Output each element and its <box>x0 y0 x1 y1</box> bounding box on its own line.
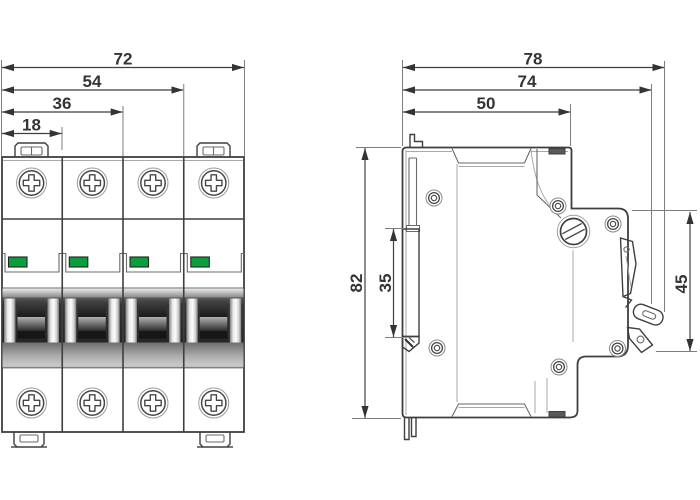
lock-tab-lower <box>628 328 653 353</box>
status-indicator-green <box>69 257 88 267</box>
front-view <box>2 143 244 447</box>
dim-label-45: 45 <box>672 275 691 294</box>
technical-drawing-page: 72 54 36 18 <box>0 0 700 500</box>
side-body-outline <box>403 148 629 418</box>
toggle-partition <box>169 299 181 343</box>
toggle-partition <box>186 299 198 343</box>
toggle-partition <box>65 299 77 343</box>
dim-label-18: 18 <box>22 116 41 135</box>
din-clip-top-tab <box>410 135 423 148</box>
toggle-partition <box>108 299 120 343</box>
din-clip-bottom-left <box>11 432 47 447</box>
din-clip-bottom-right <box>197 432 233 447</box>
front-dimensions: 72 54 36 18 <box>2 50 245 157</box>
side-view <box>403 135 666 440</box>
din-clip-top-left <box>15 143 48 157</box>
dimension-36: 36 <box>2 94 123 116</box>
toggle-partition <box>4 299 16 343</box>
terminal-screw <box>138 388 168 418</box>
top-vent-slot <box>549 149 565 155</box>
dimension-72: 72 <box>2 50 244 72</box>
toggle-partition <box>126 299 138 343</box>
dim-label-50: 50 <box>477 94 496 113</box>
toggle-handle-groove <box>78 317 106 331</box>
dim-arrow-left <box>2 64 14 71</box>
case-screw <box>550 198 566 214</box>
terminal-screw <box>199 168 229 198</box>
dim-arrow-right <box>232 64 244 71</box>
case-screw <box>605 216 621 232</box>
case-screw <box>551 359 567 375</box>
toggle-handle-groove <box>200 317 228 331</box>
dim-label-74: 74 <box>518 72 537 91</box>
dim-label-78: 78 <box>524 50 543 69</box>
terminal-screw <box>17 388 47 418</box>
din-clip-bottom-tab <box>405 418 417 440</box>
padlock-tab <box>631 302 665 327</box>
status-indicator-green <box>9 257 28 267</box>
case-screw <box>610 341 626 357</box>
terminal-screw <box>17 168 47 198</box>
terminal-screw-side <box>557 215 589 247</box>
dim-label-82: 82 <box>347 274 366 293</box>
bottom-vent-slot <box>549 412 565 418</box>
din-clip-top-right <box>197 143 230 157</box>
terminal-screw <box>138 168 168 198</box>
status-indicator-green <box>191 257 210 267</box>
dim-label-54: 54 <box>83 72 102 91</box>
mcb-dimension-drawing: 72 54 36 18 <box>0 0 700 500</box>
case-screw <box>426 190 442 206</box>
status-indicator-green <box>130 257 149 267</box>
toggle-handle-groove <box>139 317 167 331</box>
dimension-35: 35 <box>376 229 404 338</box>
toggle-handle-groove <box>18 317 46 331</box>
dimension-18: 18 <box>2 116 62 138</box>
dimension-54: 54 <box>2 72 184 94</box>
toggle-partition <box>48 299 60 343</box>
dim-label-72: 72 <box>114 50 133 69</box>
terminal-screw <box>199 388 229 418</box>
dim-label-35: 35 <box>376 274 395 293</box>
terminal-screw <box>77 388 107 418</box>
toggle-partition <box>230 299 242 343</box>
dimension-74: 74 <box>403 72 652 94</box>
lock-tab-hole <box>637 336 644 343</box>
dimension-78: 78 <box>403 50 665 72</box>
terminal-screw <box>77 168 107 198</box>
dimension-50: 50 <box>403 94 571 116</box>
case-screw <box>429 340 445 356</box>
dim-label-36: 36 <box>53 94 72 113</box>
